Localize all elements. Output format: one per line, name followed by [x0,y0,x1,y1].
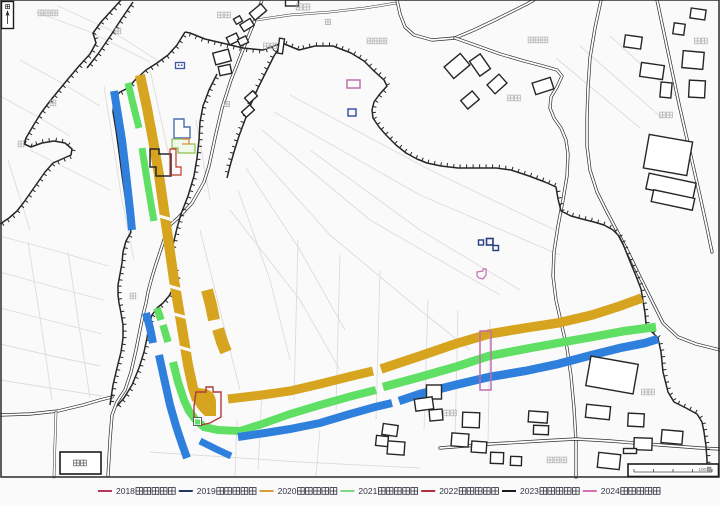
svg-text:2020: 2020 [278,486,297,496]
svg-text:2023: 2023 [520,486,539,496]
svg-text:2019: 2019 [197,486,216,496]
svg-text:2018: 2018 [116,486,135,496]
svg-text:2024: 2024 [601,486,620,496]
svg-text:100: 100 [698,467,706,472]
svg-text:2022: 2022 [439,486,458,496]
svg-text:2021: 2021 [358,486,377,496]
